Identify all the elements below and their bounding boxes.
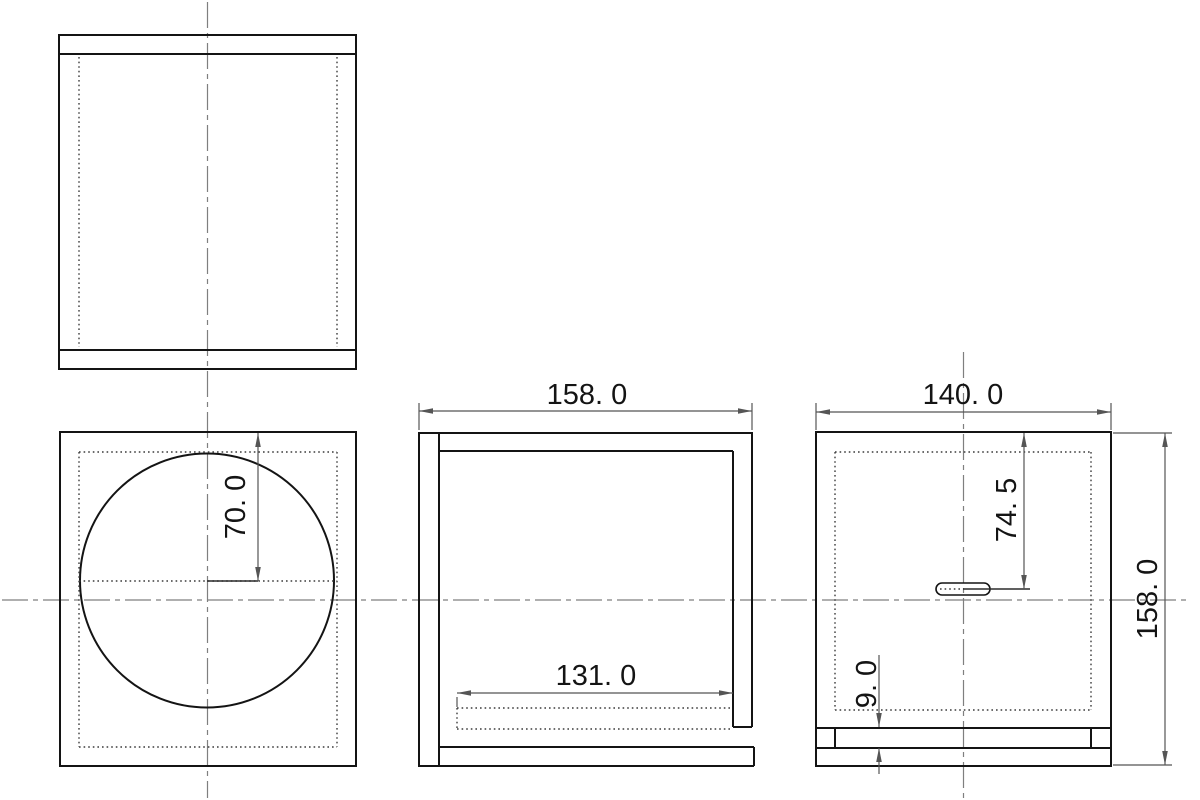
arrow-up-icon [1162,433,1168,447]
arrow-right-icon [1097,409,1111,415]
arrow-down-icon [1162,751,1168,765]
arrow-left-icon [816,409,830,415]
rear-view: 140. 0 74. 5 [816,379,1172,774]
side-section-panels [418,432,754,766]
dimension-158-height: 158. 0 [1113,433,1172,765]
arrow-down-icon [255,567,261,581]
arrow-down-icon [1021,575,1027,589]
dimension-140-label: 140. 0 [923,379,1004,411]
dimension-158-height-label: 158. 0 [1132,559,1164,640]
dimension-70: 70. 0 [207,433,261,581]
drawing-canvas: 70. 0 158. 0 [0,0,1200,800]
dimension-9-label: 9. 0 [851,660,883,708]
arrow-up-icon [255,433,261,447]
dimension-158-width: 158. 0 [419,379,752,430]
dimension-131: 131. 0 [457,660,733,707]
dimension-131-label: 131. 0 [556,660,637,692]
arrow-up-icon [1021,433,1027,447]
side-section-view: 158. 0 131. 0 [418,379,754,766]
arrow-left-icon [419,408,433,414]
arrow-left-icon [457,690,471,696]
hidden-port-board [457,708,733,729]
dimension-140: 140. 0 [816,379,1111,430]
arrow-right-icon [738,408,752,414]
dimension-74-5: 74. 5 [963,433,1030,589]
arrow-down-icon [876,713,882,727]
dimension-158-width-label: 158. 0 [547,379,628,411]
dimension-9: 9. 0 [851,655,883,774]
enclosure-four-view-drawing: 70. 0 158. 0 [0,0,1200,800]
dimension-70-label: 70. 0 [220,475,252,540]
arrow-up-icon [876,748,882,762]
dimension-74-5-label: 74. 5 [991,478,1023,543]
arrow-right-icon [719,690,733,696]
